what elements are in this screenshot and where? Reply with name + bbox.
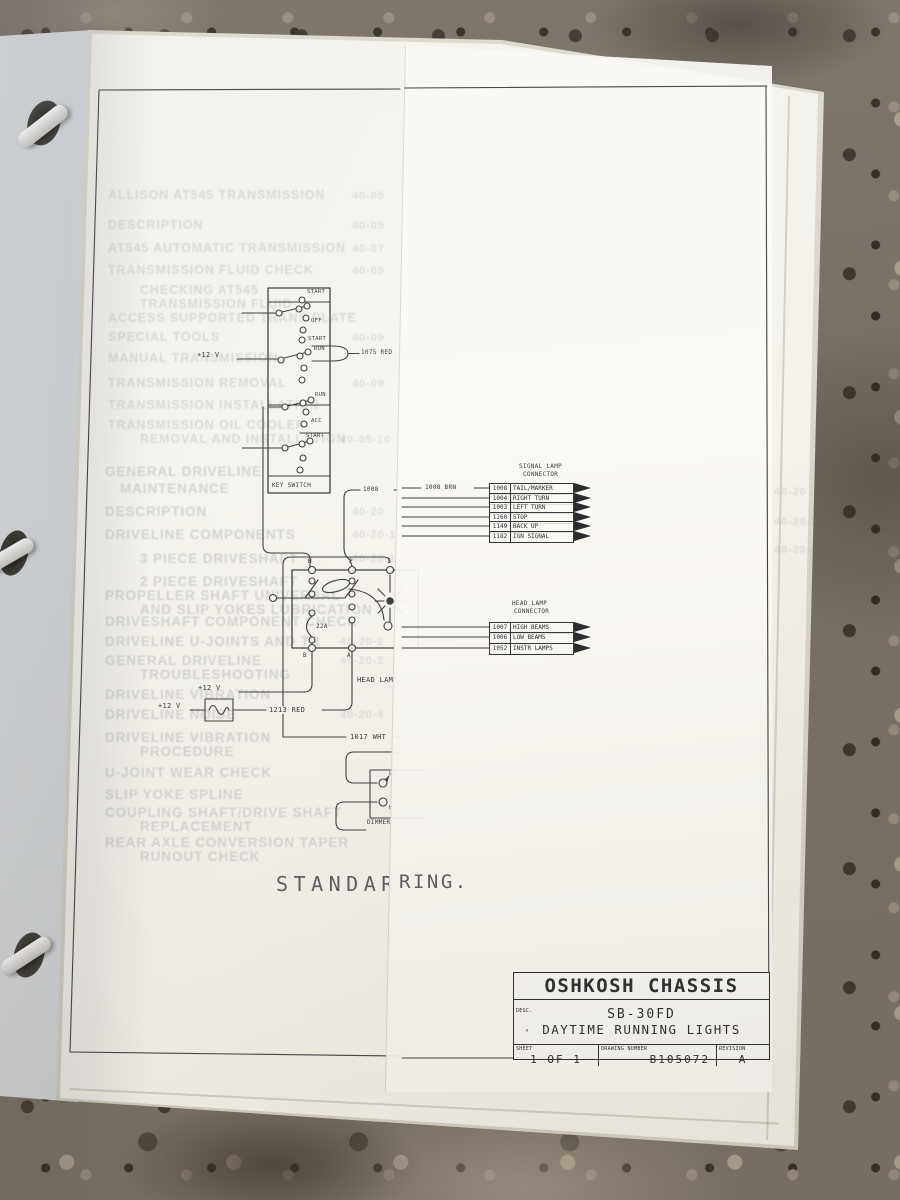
wire-label-1008: 1008 [363,486,379,493]
key-pos-label: RUN [314,346,325,352]
signal-connector-title: SIGNAL LAMP [519,463,562,470]
sheet-value: 1 OF 1 [514,1053,598,1066]
terminal-h: H [308,558,312,565]
wire-label-1213-red: 1213 RED [268,706,306,714]
terminal-i: I [387,558,391,565]
circuit-code: 1182 [490,532,511,542]
head-lamp-label: HEAD LAMP [357,676,398,684]
sheet-cell: SHEET 1 OF 1 [514,1045,599,1066]
revision-value: A [717,1053,769,1066]
breaker-arc [307,616,313,637]
wire-label-12v: +12 V [198,684,221,692]
head-connector-row: 1052INSTR LAMPS [489,643,574,655]
bleed-page-num: 40-20-4 [774,544,818,556]
key-pos-label: ACC [311,418,322,424]
circuit-label: IGN SIGNAL [511,532,573,542]
standard-text-left: STANDAR [276,872,399,896]
bleed-page-num: 40-20-2 [774,516,818,528]
terminal-b: B [303,652,307,659]
head-connector-title2: CONNECTOR [514,608,549,615]
revision-cell: REVISION A [717,1045,769,1066]
frame-top-left [99,89,400,90]
title-block-description: DESC. ' SB-30FD DAYTIME RUNNING LIGHTS [514,1007,769,1045]
dimmer-caption: DIMMER [367,819,390,826]
key-pos-label: RUN [315,392,326,398]
frame-bottom-left [70,1052,400,1056]
circuit-label: INSTR LAMPS [511,644,573,654]
wire-label-1017-wht: 1017 WHT - [349,733,396,741]
photo-wiring-diagram-binder: { "scene": {"counter_base": "#776f64", "… [0,0,900,1200]
revision-label: REVISION [719,1046,745,1052]
drawing-title: DAYTIME RUNNING LIGHTS [514,1022,769,1037]
terminal-p: P [349,558,353,565]
key-pos-label: START [308,336,326,342]
tick-mark: ' [524,1028,530,1039]
wire-label-12v: +12 V [158,702,181,710]
circuit-label: LOW BEAMS [511,633,573,643]
wire-label-1008-brn: 1008 BRN [424,484,457,491]
drawing-number-cell: DRAWING NUMBER B105072 [599,1045,717,1066]
desc-label: DESC. [516,1008,533,1014]
key-pos-label: START [307,289,325,295]
circuit-code: 1052 [490,644,511,654]
key-pos-label: START [306,433,324,439]
title-block: OSHKOSH CHASSIS DESC. ' SB-30FD DAYTIME … [513,972,770,1060]
terminal-a: A [347,652,351,659]
circuit-code: 1006 [490,633,511,643]
relay-coil [321,577,351,595]
standard-text-right: RING. [399,871,469,893]
drawing-number-value: B105072 [599,1053,716,1066]
signal-connector-title2: CONNECTOR [523,471,558,478]
breaker-label-22a: 22A [316,623,328,630]
drawing-number-label: DRAWING NUMBER [601,1046,647,1052]
wire-label-12v: +12 V [197,351,220,359]
wire-label-1075-red: 1075 RED [361,349,392,356]
title-block-company: OSHKOSH CHASSIS [514,973,769,1000]
key-pos-label: OFF [311,318,322,324]
bleed-page-num: 40-20 [774,486,807,498]
head-connector-title: HEAD LAMP [512,600,547,607]
title-block-footer: SHEET 1 OF 1 DRAWING NUMBER B105072 REVI… [514,1045,769,1066]
key-switch-caption: KEY SWITCH [272,482,311,489]
sheet-label: SHEET [516,1046,533,1052]
frame-right [766,86,769,1058]
frame-top-right [402,86,767,88]
model-number: SB-30FD [514,1007,769,1022]
signal-connector-row: 1182IGN SIGNAL [489,531,574,543]
frame-left [70,90,99,1052]
